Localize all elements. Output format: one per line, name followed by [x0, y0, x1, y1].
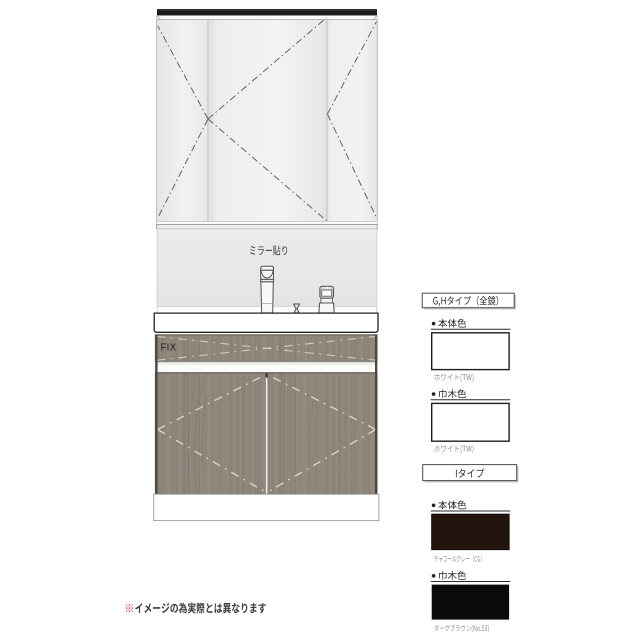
svg-text:FIX: FIX — [161, 343, 177, 354]
